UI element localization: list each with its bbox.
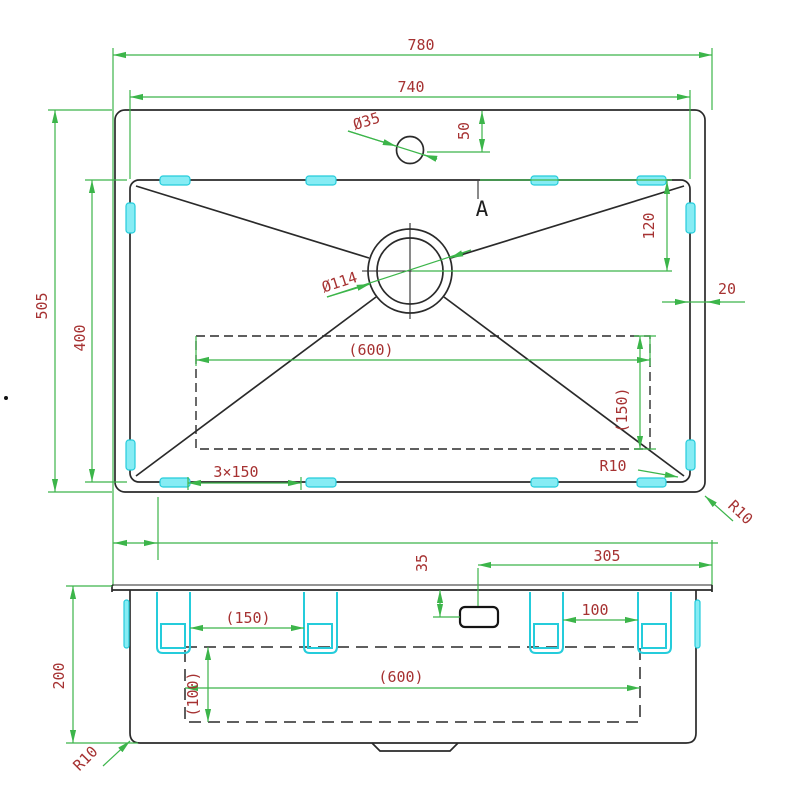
clip-tab xyxy=(160,478,190,487)
dimensions-front-view xyxy=(66,565,712,766)
dim-clip-span-right: 100 xyxy=(581,601,608,619)
drain-boss xyxy=(372,743,458,751)
clip-tab xyxy=(686,203,695,233)
top-view-outline xyxy=(115,110,705,492)
stray-dot xyxy=(4,396,8,400)
dim-corner-radius-front: R10 xyxy=(70,743,102,775)
dim-outer-radius: R10 xyxy=(724,497,756,529)
dim-outlet-offset-top: 35 xyxy=(413,554,431,572)
dim-bowl-depth: 400 xyxy=(71,324,89,351)
dim-pad-depth-top: (150) xyxy=(613,387,631,432)
clip-tab xyxy=(531,478,558,487)
clip-tab xyxy=(306,478,336,487)
clip-tab xyxy=(160,176,190,185)
sink-body xyxy=(130,590,696,743)
dim-clip-span-left: (150) xyxy=(225,609,270,627)
dimensions-top-view xyxy=(48,48,745,592)
clip-foot xyxy=(534,624,558,648)
sink-technical-drawing: 780 740 505 400 Ø35 50 A 120 20 Ø114 (60… xyxy=(0,0,792,800)
dim-drain-dia: Ø114 xyxy=(319,268,359,296)
clip-edge-strip xyxy=(695,600,700,648)
clip-foot xyxy=(161,624,185,648)
overflow-outlet xyxy=(460,607,498,627)
clip-tab xyxy=(637,478,666,487)
clip-tab xyxy=(306,176,336,185)
base-pad-dashed xyxy=(196,336,650,449)
clip-tab xyxy=(686,440,695,470)
dim-bowl-radius: R10 xyxy=(599,457,626,475)
dim-pad-height-front: (100) xyxy=(184,671,202,716)
dim-rim-width: 20 xyxy=(718,280,736,298)
mounting-clips-front-view xyxy=(124,592,700,653)
dim-overall-depth: 505 xyxy=(33,292,51,319)
dim-bowl-width: 740 xyxy=(397,78,424,96)
dim-faucet-offset: 50 xyxy=(455,122,473,140)
dim-pad-width-front: (600) xyxy=(378,668,423,686)
dim-outlet-offset-right: 305 xyxy=(593,547,620,565)
dim-body-height: 200 xyxy=(50,662,68,689)
dim-drain-offset: 120 xyxy=(640,212,658,239)
section-label: A xyxy=(476,197,489,221)
clip-tab xyxy=(126,203,135,233)
bowl-slope-line xyxy=(136,186,369,258)
clip-edge-strip xyxy=(124,600,129,648)
clip-tab xyxy=(126,440,135,470)
clip-foot xyxy=(642,624,666,648)
dim-overall-width: 780 xyxy=(407,36,434,54)
drawing-canvas: 780 740 505 400 Ø35 50 A 120 20 Ø114 (60… xyxy=(0,0,792,800)
clip-foot xyxy=(308,624,332,648)
mounting-clips-top-view xyxy=(126,176,695,487)
dim-faucet-dia: Ø35 xyxy=(351,109,382,134)
dim-pad-width-top: (600) xyxy=(348,341,393,359)
dim-clip-pitch: 3×150 xyxy=(213,463,258,481)
